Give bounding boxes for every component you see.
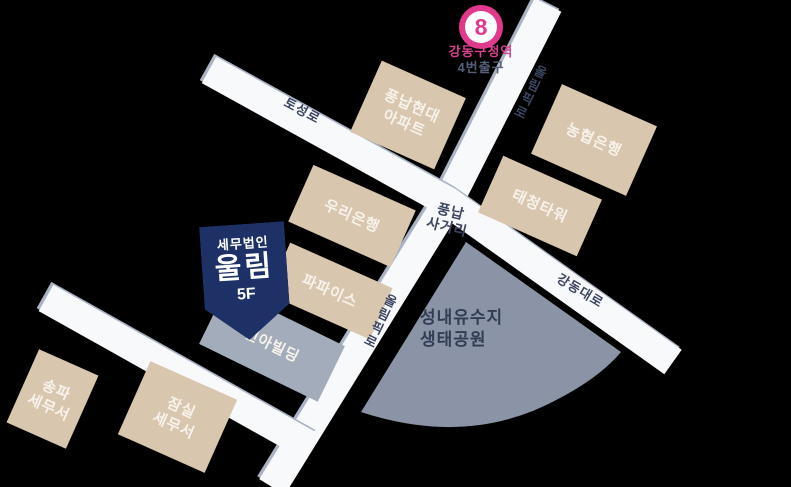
park-label-line1: 성내유수지 <box>420 307 503 329</box>
station-exit-label: 4번출구 <box>436 57 526 76</box>
park-label-line2: 생태공원 <box>420 329 503 351</box>
building-label: 파파이스 <box>299 270 361 311</box>
floor-label: 5F <box>236 284 256 305</box>
building-label: 우리은행 <box>321 195 383 236</box>
firm-name-label: 울림 <box>214 250 276 287</box>
building-label: 농협은행 <box>563 119 625 160</box>
access-map: 풍납현대 아파트 농협은행 태청타워 우리은행 파파이스 건아빌딩 송파 세무서… <box>0 0 791 487</box>
park-label-seongnae: 성내유수지 생태공원 <box>420 307 503 351</box>
building-label: 태청타워 <box>509 185 571 226</box>
